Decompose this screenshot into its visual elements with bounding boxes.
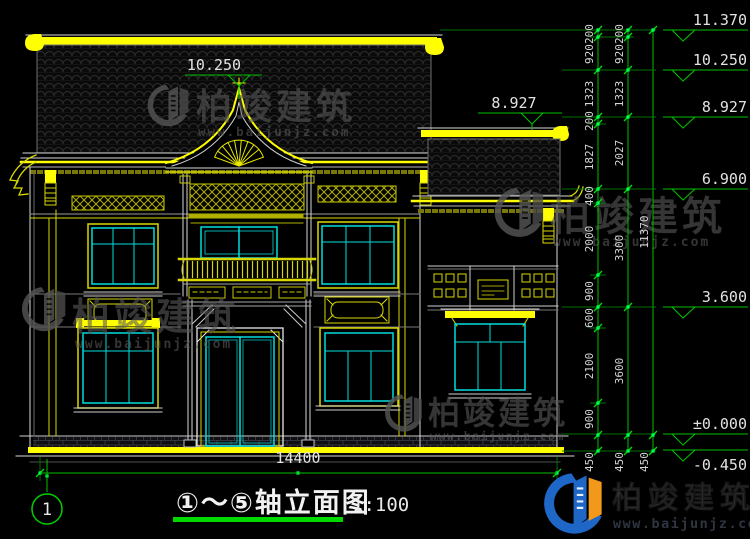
watermark-brand: 柏竣建筑 xyxy=(72,295,240,339)
company-logo-icon xyxy=(544,473,601,533)
elevation-label: 3.600 xyxy=(702,288,747,306)
dim-middle: 200 xyxy=(613,24,626,44)
watermark-brand: 柏竣建筑 xyxy=(428,394,568,432)
dim-middle: 450 xyxy=(613,452,626,472)
dim-inner: 200 xyxy=(583,24,596,44)
left-lattice-frieze xyxy=(72,196,164,210)
right-ornament-panel xyxy=(325,297,389,323)
gate-lattice-frieze xyxy=(190,184,304,210)
footer-logo: 柏竣建筑 www.baijunjz.com xyxy=(544,473,750,533)
parapet-center-ornament xyxy=(478,280,508,299)
watermark-site: www.baijunjz.com xyxy=(198,124,350,139)
dim-inner: 2000 xyxy=(583,226,596,253)
wing-ridge-band xyxy=(421,130,561,137)
right-upper-window xyxy=(322,226,394,284)
right-lattice-frieze xyxy=(318,186,396,202)
elevation-label: ±0.000 xyxy=(693,415,747,433)
watermark-right: 柏竣建筑 www.baijunjz.com xyxy=(495,188,726,250)
elevation-label: 10.250 xyxy=(693,51,747,69)
drawing-scale: 1:100 xyxy=(352,494,409,516)
dim-inner: 450 xyxy=(583,452,596,472)
title-block: 1 ①～⑤轴立面图 1:100 xyxy=(32,459,409,524)
dim-inner: 1323 xyxy=(583,81,596,108)
right-upper-window-frame xyxy=(318,222,398,288)
left-upper-window-frame xyxy=(88,224,158,288)
drawing-canvas: 柏竣建筑 www.baijunjz.com 柏竣建筑 www.baijunjz.… xyxy=(0,0,750,539)
elevation-marker-wing-ridge: 8.927 xyxy=(478,94,562,130)
company-site: www.baijunjz.com xyxy=(613,516,750,532)
dim-inner: 400 xyxy=(583,186,596,206)
dim-total-height: 11370 xyxy=(638,215,651,248)
overall-width-label: 14400 xyxy=(275,449,320,467)
drawing-title: ①～⑤轴立面图 xyxy=(176,487,371,519)
wing-roof-tiles xyxy=(428,139,560,195)
watermark-logo-icon xyxy=(385,394,422,431)
parapet-squares xyxy=(434,274,554,297)
dim-middle: 3600 xyxy=(613,358,626,385)
elevation-label: 10.250 xyxy=(187,56,241,74)
watermark-brand: 柏竣建筑 xyxy=(196,87,356,128)
ridge-ornament-left xyxy=(25,34,44,51)
title-underline xyxy=(173,517,343,522)
watermark-site: www.baijunjz.com xyxy=(75,337,232,352)
elevation-label: -0.450 xyxy=(693,456,747,474)
right-lower-window-frame xyxy=(320,328,398,406)
company-brand: 柏竣建筑 xyxy=(612,481,750,516)
watermark-site: www.baijunjz.com xyxy=(553,235,710,250)
balcony-balusters xyxy=(184,261,310,278)
dim-middle: 920 xyxy=(613,44,626,64)
corner-post-left xyxy=(45,170,56,205)
dim-inner: 920 xyxy=(583,44,596,64)
dim-inner: 600 xyxy=(583,308,596,328)
watermark-left: 柏竣建筑 www.baijunjz.com xyxy=(22,287,240,352)
gate-second-floor xyxy=(179,174,315,298)
dim-inner: 900 xyxy=(583,409,596,429)
right-section xyxy=(314,186,400,410)
elevation-label: 6.900 xyxy=(702,170,747,188)
wing-window-canopy xyxy=(445,311,535,318)
elevation-label: 8.927 xyxy=(491,94,536,112)
ridge-ornament-right xyxy=(425,38,444,55)
dim-middle: 1323 xyxy=(613,81,626,108)
elevation-label: 11.370 xyxy=(693,11,747,29)
cad-elevation-drawing: 柏竣建筑 www.baijunjz.com 柏竣建筑 www.baijunjz.… xyxy=(0,0,750,539)
watermark-site: www.baijunjz.com xyxy=(430,429,565,443)
dim-middle: 2027 xyxy=(613,140,626,167)
main-ridge-band xyxy=(31,37,437,45)
dim-total-footing: 450 xyxy=(638,452,651,472)
left-upper-window xyxy=(92,228,154,284)
dim-inner: 2100 xyxy=(583,353,596,380)
dim-inner: 1827 xyxy=(583,144,596,171)
dim-inner: 200 xyxy=(583,111,596,131)
right-lower-window xyxy=(325,333,393,401)
dim-middle: 3300 xyxy=(613,235,626,262)
axis-bubble-number: 1 xyxy=(42,500,52,520)
elevation-label: 8.927 xyxy=(702,98,747,116)
dim-inner: 900 xyxy=(583,281,596,301)
